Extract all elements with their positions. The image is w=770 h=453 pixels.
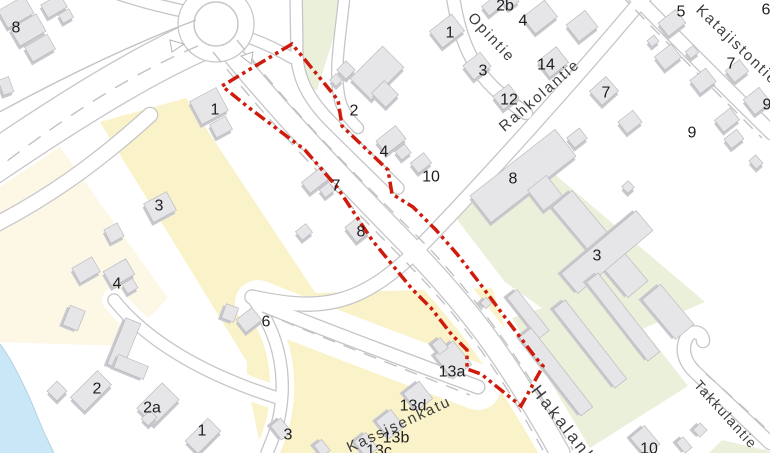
house-number-label: 4 <box>113 276 122 293</box>
house-number-label: 1 <box>446 25 455 42</box>
house-number-label: 10 <box>422 169 440 186</box>
house-number-label: 13c <box>366 443 392 453</box>
house-number-label: 4 <box>380 144 389 161</box>
house-number-label: 12 <box>500 92 518 109</box>
house-number-label: 3 <box>284 427 293 444</box>
house-number-label: 2 <box>93 381 102 398</box>
house-number-label: 9 <box>688 125 697 142</box>
house-number-label: 8 <box>357 224 366 241</box>
roundabout-island <box>194 2 238 46</box>
house-number-label: 9 <box>763 97 770 114</box>
house-number-label: 2b <box>496 0 514 15</box>
house-number-label: 1 <box>198 423 207 440</box>
house-number-label: 13a <box>439 364 466 381</box>
house-number-label: 7 <box>602 85 611 102</box>
house-number-label: 3 <box>593 248 602 265</box>
house-number-label: 1 <box>211 102 220 119</box>
map-svg[interactable]: OpintieRahkolantieKatajistontieHakalanka… <box>0 0 770 453</box>
house-number-label: 6 <box>762 2 770 19</box>
house-number-label: 2 <box>350 103 359 120</box>
house-number-label: 2a <box>143 400 161 417</box>
house-number-label: 3 <box>155 198 164 215</box>
house-number-label: 4 <box>519 13 528 30</box>
house-number-label: 7 <box>332 178 341 195</box>
house-number-label: 5 <box>677 4 686 21</box>
house-number-label: 7 <box>727 56 736 73</box>
house-number-label: 8 <box>509 171 518 188</box>
house-number-label: 8 <box>12 20 21 37</box>
house-number-label: 13d <box>400 398 427 415</box>
house-number-label: 10 <box>640 441 658 453</box>
house-number-label: 6 <box>262 314 271 331</box>
house-number-label: 3 <box>479 63 488 80</box>
map-canvas[interactable]: OpintieRahkolantieKatajistontieHakalanka… <box>0 0 770 453</box>
house-number-label: 14 <box>537 57 555 74</box>
